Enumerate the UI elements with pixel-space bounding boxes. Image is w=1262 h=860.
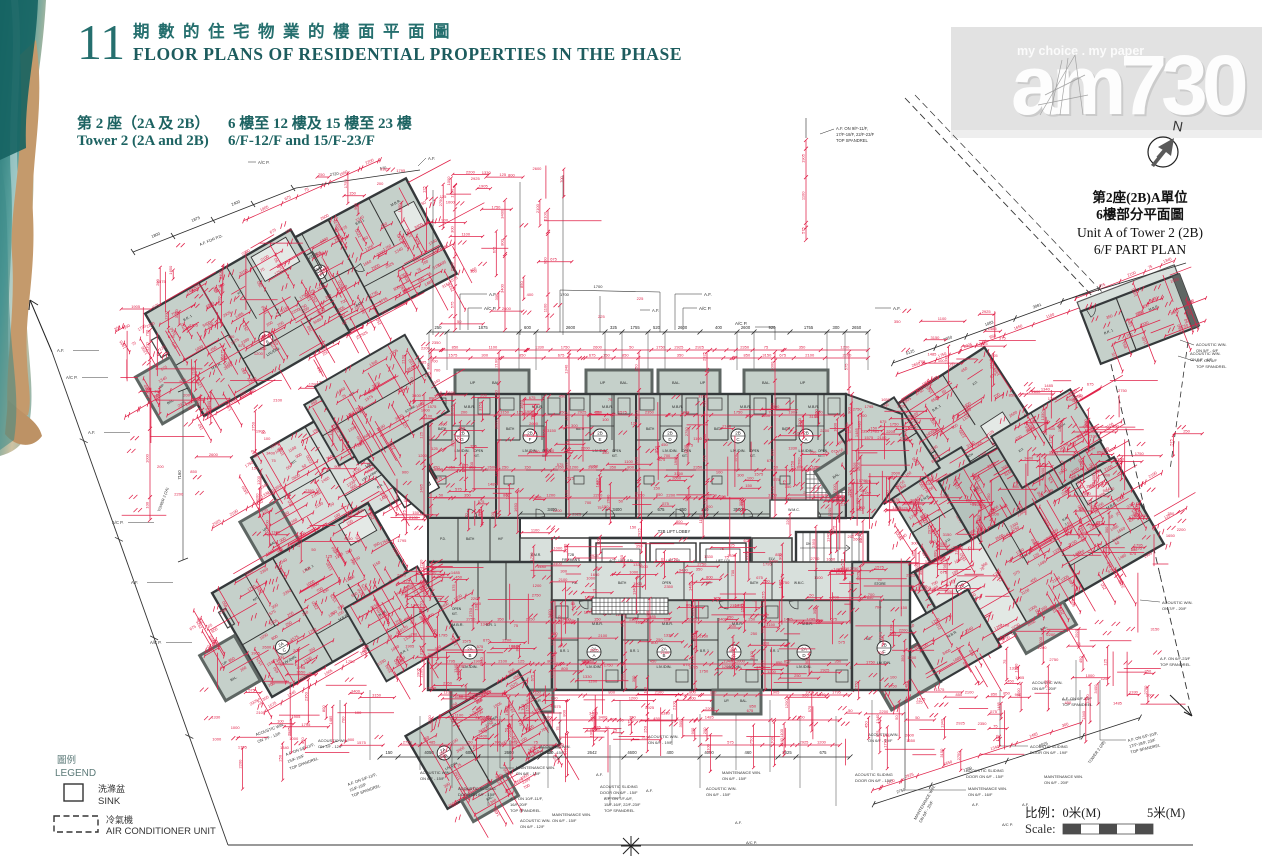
svg-text:3400: 3400 [598,715,608,720]
svg-text:575: 575 [733,454,738,461]
svg-text:150: 150 [594,617,601,622]
svg-text:1200: 1200 [925,559,935,564]
svg-text:BATH: BATH [750,581,759,585]
svg-text:1330: 1330 [1129,689,1139,694]
svg-text:2200: 2200 [450,262,455,272]
svg-text:KIT.: KIT. [474,454,480,458]
svg-text:2600: 2600 [533,166,543,171]
svg-text:575: 575 [838,640,845,645]
svg-text:2600: 2600 [566,325,576,330]
svg-text:250: 250 [810,450,817,455]
svg-text:1750: 1750 [145,389,150,399]
svg-text:MAINTENANCE WIN.: MAINTENANCE WIN. [722,770,761,775]
svg-text:7160: 7160 [177,470,182,480]
svg-text:75: 75 [592,588,597,593]
svg-text:575: 575 [1168,438,1173,445]
svg-text:1575: 1575 [448,353,458,358]
svg-text:1340: 1340 [564,364,569,374]
svg-text:700: 700 [411,631,418,636]
svg-text:1795: 1795 [832,690,842,695]
svg-text:1575: 1575 [462,639,472,644]
svg-text:3150: 3150 [939,748,944,758]
svg-text:1200: 1200 [840,345,850,350]
svg-text:850: 850 [744,353,751,358]
svg-text:1650: 1650 [1106,486,1116,491]
svg-text:350: 350 [900,654,905,661]
svg-text:3150: 3150 [1049,450,1059,455]
svg-text:B.R. 1: B.R. 1 [630,649,639,653]
svg-text:2600: 2600 [891,470,901,475]
svg-text:2750: 2750 [403,740,413,745]
svg-text:2750: 2750 [956,751,961,761]
svg-text:800: 800 [469,465,476,470]
svg-text:3400: 3400 [1091,474,1096,484]
svg-text:ACOUSTIC WIN.: ACOUSTIC WIN. [648,734,679,739]
svg-text:3400: 3400 [266,450,276,455]
svg-text:1200: 1200 [533,583,543,588]
svg-text:700: 700 [520,703,525,710]
svg-text:1000: 1000 [397,203,402,213]
svg-text:150: 150 [653,485,660,490]
svg-text:850: 850 [551,696,558,701]
svg-text:2100: 2100 [805,353,815,358]
svg-text:2B: 2B [881,643,887,648]
svg-text:900: 900 [846,406,851,413]
svg-text:2750: 2750 [854,680,859,690]
svg-text:300: 300 [737,473,744,478]
svg-text:300: 300 [564,462,569,469]
svg-text:1100: 1100 [469,713,478,718]
svg-text:2200: 2200 [1038,636,1043,646]
svg-text:800: 800 [500,238,505,245]
svg-text:850: 850 [727,615,734,620]
svg-text:1875: 1875 [478,325,488,330]
svg-text:800: 800 [770,449,775,456]
svg-text:1340: 1340 [900,436,910,441]
svg-text:2600: 2600 [265,519,270,529]
svg-text:2200: 2200 [247,377,257,382]
svg-text:M.B.R.: M.B.R. [808,405,819,409]
svg-text:16/F-20/F: 16/F-20/F [510,802,528,807]
svg-text:2750: 2750 [466,617,476,622]
svg-text:450: 450 [455,574,462,579]
svg-text:2925: 2925 [982,309,992,314]
svg-text:M.B.R.: M.B.R. [452,623,464,627]
svg-text:200: 200 [907,414,914,419]
svg-text:300: 300 [911,540,918,545]
svg-text:2350: 2350 [645,410,655,415]
svg-text:675: 675 [702,454,707,461]
svg-text:A.F.: A.F. [88,430,95,435]
svg-text:675: 675 [550,257,557,262]
svg-text:1650: 1650 [296,670,306,675]
svg-text:A.F. ON 10/F-11/F,: A.F. ON 10/F-11/F, [510,796,543,801]
svg-text:2100: 2100 [661,650,671,655]
svg-text:1650: 1650 [591,572,601,577]
svg-text:2100: 2100 [972,502,982,507]
svg-text:BAL.: BAL. [620,381,628,385]
svg-text:675: 675 [483,637,490,642]
svg-text:5米(M): 5米(M) [1147,806,1185,820]
svg-text:1200: 1200 [683,444,688,454]
svg-text:1650: 1650 [989,359,994,369]
svg-text:2750: 2750 [853,407,863,412]
svg-text:1000: 1000 [446,199,456,204]
svg-text:B.R. 1: B.R. 1 [560,649,569,653]
svg-text:575: 575 [807,705,812,712]
svg-text:11: 11 [77,14,125,70]
svg-text:250: 250 [449,465,456,470]
svg-text:1905: 1905 [415,667,420,677]
svg-text:2100: 2100 [543,715,553,720]
svg-text:1000: 1000 [1086,673,1096,678]
svg-text:1000: 1000 [421,407,431,412]
svg-text:50: 50 [848,708,853,713]
svg-text:A.F.: A.F. [972,802,979,807]
svg-text:ON 6/F - 16/F: ON 6/F - 16/F [968,792,993,797]
svg-text:575: 575 [895,485,902,490]
svg-text:OPEN: OPEN [452,607,462,611]
svg-text:300: 300 [481,353,488,358]
svg-text:300: 300 [924,585,931,590]
svg-text:期數的住宅物業的樓面平面圖: 期數的住宅物業的樓面平面圖 [133,21,458,41]
svg-text:450: 450 [1007,678,1014,683]
svg-text:圖例: 圖例 [57,754,76,766]
svg-text:700: 700 [875,605,882,610]
svg-text:125: 125 [1103,480,1110,485]
svg-text:350: 350 [497,617,504,622]
svg-text:1200: 1200 [784,699,789,709]
svg-text:575: 575 [727,740,734,745]
svg-text:1200: 1200 [570,465,580,470]
svg-text:2350: 2350 [397,573,407,578]
svg-text:KIT.: KIT. [612,454,618,458]
svg-text:A/C P.: A/C P. [112,520,124,525]
svg-text:225: 225 [598,314,605,319]
svg-text:G: G [460,437,464,442]
svg-text:200: 200 [702,727,707,734]
svg-text:1340: 1340 [411,603,421,608]
svg-text:2350: 2350 [305,488,315,493]
svg-text:100: 100 [602,417,609,422]
svg-text:700: 700 [928,476,935,481]
svg-text:200: 200 [157,464,164,469]
svg-text:1650: 1650 [906,738,916,743]
svg-text:1340: 1340 [1081,710,1086,720]
svg-text:100: 100 [145,501,150,508]
svg-text:3400: 3400 [412,393,422,398]
svg-text:2100: 2100 [423,414,433,419]
svg-text:450: 450 [458,426,465,431]
svg-text:75: 75 [555,726,560,731]
svg-text:100: 100 [509,643,516,648]
svg-text:150: 150 [534,690,541,695]
svg-text:A.F.: A.F. [596,772,603,777]
svg-text:2350: 2350 [978,721,988,726]
svg-text:2B: 2B [803,431,809,436]
svg-text:350: 350 [799,345,806,350]
svg-text:1750: 1750 [604,663,614,668]
svg-text:350: 350 [464,493,471,498]
svg-text:125: 125 [419,431,424,438]
svg-text:300: 300 [678,720,683,727]
svg-text:1575: 1575 [864,435,874,440]
svg-text:850: 850 [519,353,526,358]
svg-text:1905: 1905 [788,410,798,415]
svg-text:2925: 2925 [578,410,588,415]
svg-text:850: 850 [1097,449,1104,454]
svg-text:1200: 1200 [546,493,556,498]
svg-text:700: 700 [550,671,555,678]
svg-text:2350: 2350 [1079,460,1084,470]
svg-text:1200: 1200 [722,664,732,669]
svg-text:P.D.: P.D. [440,537,446,541]
svg-text:6/F PART PLAN: 6/F PART PLAN [1094,242,1186,257]
svg-text:2B: 2B [735,431,741,436]
svg-text:1795: 1795 [859,478,869,483]
svg-text:400: 400 [715,325,723,330]
svg-text:M.B.R.: M.B.R. [672,405,683,409]
svg-text:2925: 2925 [674,345,684,350]
svg-text:1000: 1000 [212,737,222,742]
svg-text:400: 400 [667,750,675,755]
svg-text:ON 6/F - 15/F: ON 6/F - 15/F [540,750,565,755]
svg-text:2200: 2200 [174,491,184,496]
svg-text:2750: 2750 [250,421,255,431]
svg-text:850: 850 [1009,392,1016,397]
svg-text:2350: 2350 [795,431,805,436]
svg-text:675: 675 [830,617,837,622]
svg-text:1905: 1905 [1066,397,1076,402]
svg-text:2100: 2100 [559,577,569,582]
svg-text:3150: 3150 [698,394,708,399]
svg-text:1100: 1100 [1001,623,1010,628]
svg-text:3150: 3150 [762,353,772,358]
svg-text:MAINTENANCE WIN.: MAINTENANCE WIN. [552,812,591,817]
svg-text:350: 350 [404,498,411,503]
svg-text:2642: 2642 [587,750,597,755]
svg-text:1905: 1905 [405,643,415,648]
svg-text:B: B [468,653,471,658]
svg-text:1100: 1100 [543,303,548,312]
svg-text:675: 675 [491,246,496,253]
svg-text:1905: 1905 [801,153,806,163]
svg-text:125: 125 [1103,658,1108,665]
svg-text:150: 150 [328,428,333,435]
svg-text:1700: 1700 [594,284,604,289]
svg-text:75: 75 [967,546,972,551]
svg-text:1340: 1340 [940,493,950,498]
svg-text:1795: 1795 [897,404,907,409]
svg-text:450: 450 [433,465,440,470]
svg-text:DOOR ON 6/F - 15/F: DOOR ON 6/F - 15/F [458,792,496,797]
svg-text:150: 150 [603,353,610,358]
svg-text:1750: 1750 [699,668,709,673]
svg-text:ON 6/F - 12/F: ON 6/F - 12/F [520,824,545,829]
svg-text:BAL.: BAL. [672,381,680,385]
svg-text:1575: 1575 [740,603,745,613]
svg-text:ACOUSTIC WIN.: ACOUSTIC WIN. [520,818,551,823]
svg-text:200: 200 [848,534,855,539]
svg-text:2200: 2200 [899,628,909,633]
svg-text:800: 800 [706,574,713,579]
svg-text:1330: 1330 [1040,411,1045,421]
svg-text:150: 150 [870,425,877,430]
svg-text:LIV./DIN.: LIV./DIN. [656,665,671,669]
svg-text:1340: 1340 [940,718,945,728]
svg-text:ACOUSTIC WIN.: ACOUSTIC WIN. [1196,342,1227,347]
svg-text:1100: 1100 [462,231,471,236]
svg-text:675: 675 [744,538,751,543]
svg-text:1575: 1575 [618,410,628,415]
svg-text:1650: 1650 [826,557,836,562]
svg-text:150: 150 [634,364,639,371]
svg-text:3150: 3150 [766,622,776,627]
svg-text:300: 300 [1104,526,1109,533]
svg-text:850: 850 [858,536,863,543]
svg-text:125: 125 [518,659,525,664]
svg-text:BAL.: BAL. [740,699,747,703]
svg-text:2350: 2350 [432,340,442,345]
svg-text:2100: 2100 [722,424,732,429]
svg-text:2100: 2100 [1088,434,1098,439]
svg-text:1485: 1485 [488,481,498,486]
svg-text:M.B.R.: M.B.R. [662,622,673,626]
svg-text:1200: 1200 [254,351,264,356]
svg-text:2650: 2650 [852,325,862,330]
svg-text:ON 6/F - 15/F: ON 6/F - 15/F [552,818,577,823]
svg-text:1340: 1340 [634,491,639,501]
svg-text:15/F-16/F, 22/F-23/F: 15/F-16/F, 22/F-23/F [604,802,641,807]
svg-text:200: 200 [293,648,300,653]
svg-text:400: 400 [527,292,534,297]
svg-text:第 2 座（2A 及 2B）: 第 2 座（2A 及 2B） [77,114,210,132]
svg-text:350: 350 [677,353,684,358]
svg-text:200: 200 [1146,693,1153,698]
svg-text:850: 850 [190,469,197,474]
svg-text:675: 675 [880,419,887,424]
svg-text:A.F. ON 7/F-6/F,: A.F. ON 7/F-6/F, [604,796,633,801]
svg-text:800: 800 [321,705,326,712]
svg-text:am730: am730 [1011,38,1246,132]
svg-text:200: 200 [461,410,468,415]
svg-text:1485: 1485 [928,352,938,357]
svg-text:T2B: T2B [568,553,575,557]
svg-text:ACOUSTIC WIN.: ACOUSTIC WIN. [420,770,451,775]
svg-text:2200: 2200 [820,428,830,433]
svg-text:1485: 1485 [419,483,424,493]
svg-text:700: 700 [832,595,839,600]
svg-text:Unit A of Tower 2 (2B): Unit A of Tower 2 (2B) [1077,225,1203,240]
svg-text:700: 700 [214,288,221,293]
svg-text:50: 50 [774,465,779,470]
svg-text:1485: 1485 [705,715,715,720]
svg-text:1485: 1485 [1113,701,1123,706]
svg-text:A/C P.: A/C P. [735,321,747,326]
svg-text:3150: 3150 [642,735,652,740]
svg-text:LIV./DIN.: LIV./DIN. [586,665,601,669]
svg-text:2100: 2100 [598,633,608,638]
svg-text:300: 300 [631,675,636,682]
svg-text:50: 50 [261,430,266,435]
svg-text:ON 6/F - 19/F: ON 6/F - 19/F [648,740,673,745]
svg-text:2925: 2925 [590,553,600,558]
svg-text:2200: 2200 [1116,459,1121,469]
svg-text:LIV./DIN.: LIV./DIN. [454,449,469,453]
svg-text:6樓部分平面圖: 6樓部分平面圖 [1096,206,1184,222]
svg-text:2B: 2B [597,431,603,436]
svg-text:1485: 1485 [988,326,998,331]
svg-text:1100: 1100 [444,690,453,695]
svg-text:325: 325 [610,325,618,330]
svg-text:50: 50 [519,722,524,727]
svg-text:3400: 3400 [553,561,563,566]
svg-text:850: 850 [775,552,782,557]
svg-text:2200: 2200 [886,429,896,434]
svg-text:250: 250 [642,725,647,732]
svg-text:1340: 1340 [825,532,830,542]
svg-text:575: 575 [662,501,669,506]
svg-text:575: 575 [773,477,780,482]
svg-text:ACOUSTIC SLIDING: ACOUSTIC SLIDING [600,784,638,789]
svg-text:50: 50 [605,725,610,730]
svg-text:H/F: H/F [498,537,503,541]
svg-text:250: 250 [278,754,283,761]
svg-text:DOOR ON 6/F - 15/F: DOOR ON 6/F - 15/F [855,778,893,783]
svg-text:2600: 2600 [494,420,499,430]
svg-text:575: 575 [990,709,997,714]
svg-text:2925: 2925 [590,647,600,652]
svg-text:800: 800 [627,465,634,470]
svg-text:A.F.: A.F. [704,292,712,297]
svg-text:1795: 1795 [189,323,199,328]
svg-text:2200: 2200 [885,490,890,500]
svg-text:FLOOR PLANS OF RESIDENTIAL PRO: FLOOR PLANS OF RESIDENTIAL PROPERTIES IN… [133,44,682,64]
svg-text:850: 850 [519,281,524,288]
svg-text:50: 50 [1032,418,1037,423]
svg-text:2200: 2200 [502,638,512,643]
svg-text:1750: 1750 [866,659,876,664]
svg-text:850: 850 [260,346,267,351]
svg-text:450: 450 [864,721,869,728]
svg-text:100: 100 [710,690,717,695]
svg-text:125: 125 [422,186,427,193]
svg-text:900: 900 [1040,467,1045,474]
svg-text:2925: 2925 [927,525,932,535]
svg-text:50: 50 [619,498,624,503]
svg-text:75: 75 [877,577,882,582]
svg-text:E: E [598,437,601,442]
svg-text:3400: 3400 [1093,684,1098,694]
svg-text:1000: 1000 [289,736,299,741]
svg-text:DOOR ON 6/F - 15/F: DOOR ON 6/F - 15/F [966,774,1004,779]
svg-text:A: A [804,437,807,442]
svg-text:3150: 3150 [809,414,819,419]
svg-text:520: 520 [653,325,661,330]
svg-text:ACOUSTIC WIN.: ACOUSTIC WIN. [1190,351,1221,356]
svg-text:2350: 2350 [730,603,740,608]
svg-text:1330: 1330 [535,345,545,350]
svg-text:675: 675 [589,353,596,358]
svg-text:ON 6/F - 19/F: ON 6/F - 19/F [868,738,893,743]
svg-text:M.B.R.: M.B.R. [740,405,751,409]
svg-text:2200: 2200 [879,709,889,714]
svg-text:2925: 2925 [820,667,830,672]
svg-text:1795: 1795 [806,617,816,622]
svg-text:700: 700 [1059,447,1066,452]
svg-text:700: 700 [455,435,460,442]
svg-text:1340: 1340 [723,659,733,664]
